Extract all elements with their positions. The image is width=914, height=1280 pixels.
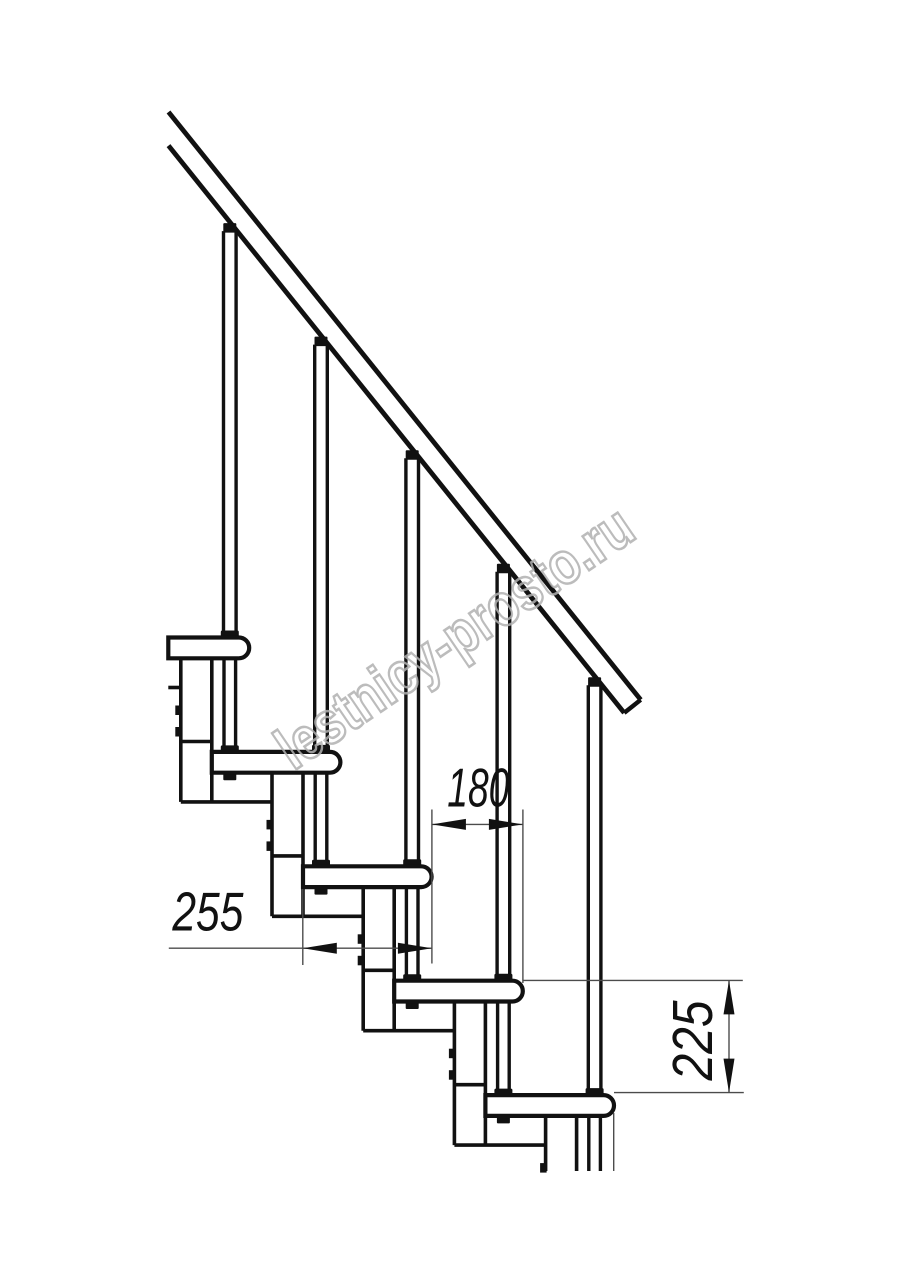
svg-text:225: 225 (661, 1000, 725, 1081)
svg-text:180: 180 (447, 757, 509, 819)
svg-text:255: 255 (172, 881, 244, 943)
